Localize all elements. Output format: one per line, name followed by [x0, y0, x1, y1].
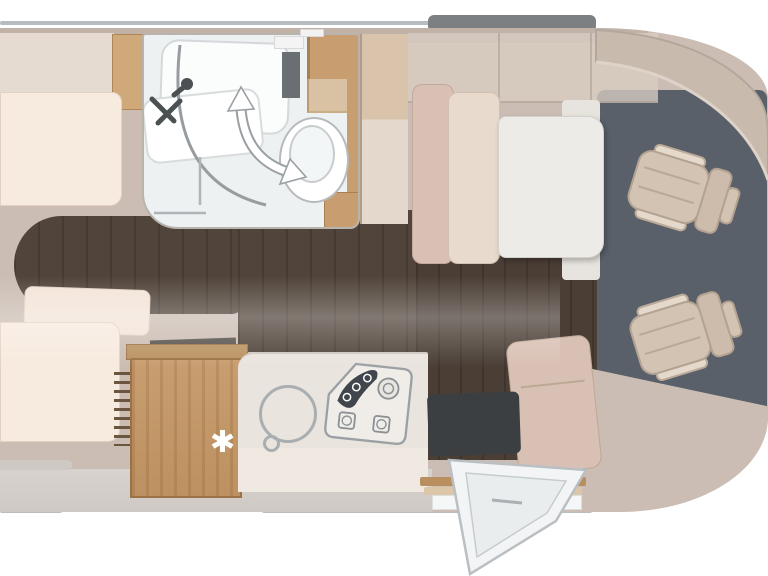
- door-threshold: [420, 477, 586, 486]
- sink-faucet-icon: [263, 435, 280, 452]
- vehicle-body: ✱✱✱: [0, 28, 768, 512]
- overhead-locker-rear: [0, 33, 114, 101]
- bathroom: [142, 33, 360, 229]
- dinette-table: [498, 116, 604, 258]
- locker-divider: [590, 33, 592, 103]
- locker-divider: [498, 33, 500, 103]
- shower-faucet-icon: [152, 87, 184, 123]
- wood-floor-kitchen: [238, 210, 420, 352]
- exterior-top-line: [0, 21, 436, 25]
- kitchen-counter-front: [238, 448, 428, 492]
- floorplan-canvas: ✱✱✱: [0, 0, 768, 576]
- entry-door-mat: [427, 391, 521, 456]
- twin-bed-right: [0, 322, 120, 442]
- door-threshold-inner: [424, 487, 582, 495]
- sink-icon: [259, 385, 317, 443]
- side-bench: [505, 334, 603, 476]
- fridge: ✱✱✱: [130, 358, 242, 498]
- swivel-arrow-icon: [228, 87, 306, 184]
- roof-vent-mark: [300, 29, 324, 37]
- hob-burners-icon: [320, 357, 421, 454]
- side-bench-seam: [521, 380, 585, 389]
- dinette-bench-seat: [448, 92, 500, 264]
- ladder: [114, 372, 130, 446]
- bottom-wall-shelf: [0, 460, 72, 470]
- wardrobe-column: [360, 34, 408, 224]
- bathroom-graphics: [144, 35, 360, 229]
- twin-bed-left: [0, 92, 122, 206]
- entry-step: [432, 495, 582, 510]
